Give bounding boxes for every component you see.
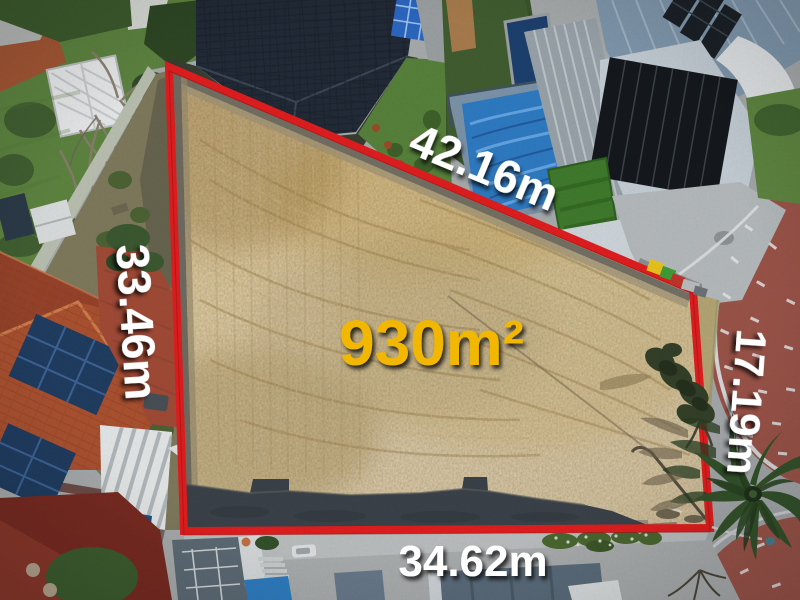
svg-text:34.62m: 34.62m (398, 537, 547, 586)
svg-text:930m²: 930m² (339, 307, 524, 379)
svg-text:33.46m: 33.46m (106, 243, 167, 402)
svg-text:17.19m: 17.19m (717, 328, 775, 477)
